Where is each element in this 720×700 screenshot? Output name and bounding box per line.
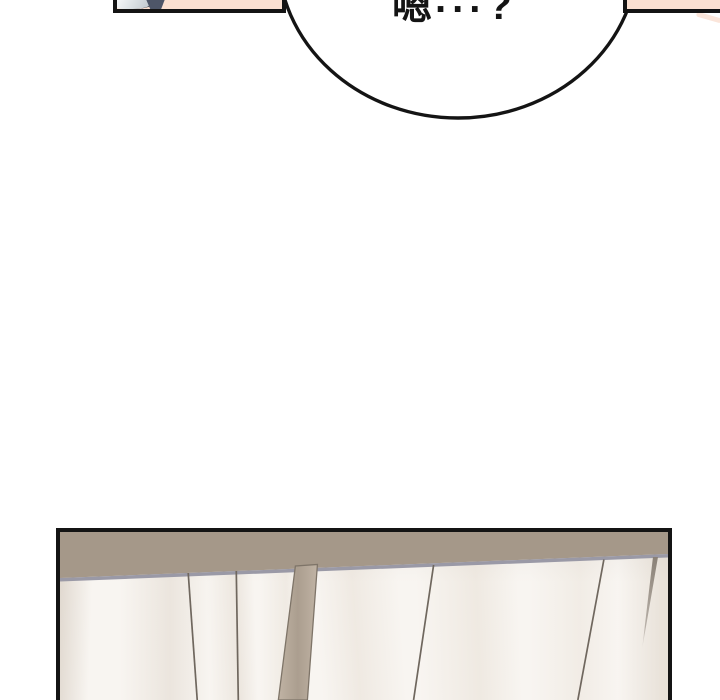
blind-separator-4	[578, 560, 604, 700]
dark-blind-slat	[278, 565, 317, 700]
blind-separator-3	[414, 565, 434, 700]
character-collar	[146, 0, 165, 9]
speech-bubble-text: 嗯...?	[392, 0, 512, 27]
panel-top-right	[623, 0, 720, 13]
ceiling-band	[60, 532, 668, 578]
blind-separator-1	[188, 573, 197, 700]
character-hair	[117, 0, 152, 9]
skin-smudge	[696, 12, 720, 24]
blind-separator-2	[236, 571, 238, 700]
panel-bottom	[56, 528, 672, 700]
bubble-question-mark: ?	[487, 0, 511, 28]
vertical-blinds-background	[60, 532, 668, 700]
panel-top-left	[113, 0, 286, 13]
comic-page: 嗯...?	[0, 0, 720, 700]
vertical-blinds-art	[60, 532, 668, 700]
bubble-ellipsis: ...	[435, 0, 486, 21]
bubble-char: 嗯	[392, 0, 432, 28]
blind-sliver	[642, 557, 658, 650]
